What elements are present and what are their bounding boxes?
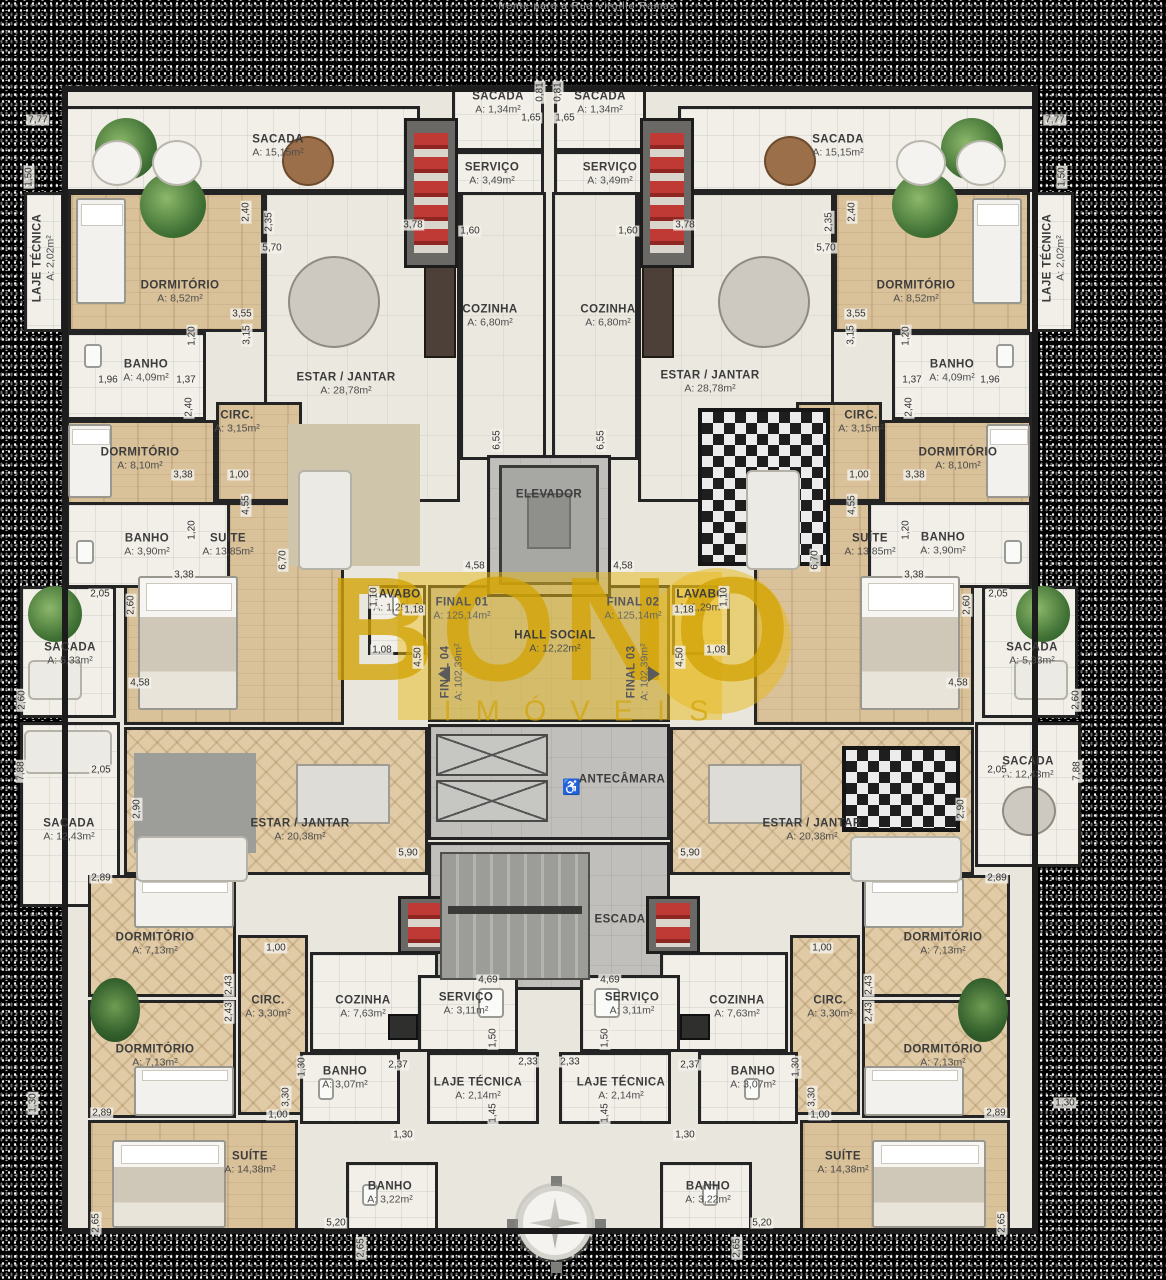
- dining-table: [296, 764, 390, 824]
- room-dormitorio-area: A: 8,10m²: [101, 460, 180, 472]
- room-dormitorio-label: DORMITÓRIOA: 7,13m²: [904, 931, 983, 956]
- dining-table: [708, 764, 802, 824]
- dimension-label: 2,60: [1071, 688, 1082, 711]
- crossed-slab: [436, 780, 548, 822]
- room-circ-area: A: 3,15m²: [214, 423, 260, 435]
- dimension-label: 3,30: [281, 1085, 292, 1108]
- room-sacada-label: SACADAA: 12,43m²: [1002, 755, 1054, 780]
- compass-icon: [518, 1186, 592, 1260]
- compass-tick-east: [595, 1219, 606, 1230]
- room-estar-jantar-area: A: 28,78m²: [296, 385, 395, 397]
- room-laje-tecnica-area: A: 2,02m²: [45, 214, 57, 303]
- dimension-label: 1,50: [1057, 165, 1068, 188]
- room-suite-label: SUÍTEA: 14,38m²: [224, 1150, 275, 1175]
- dimension-label: 1,60: [458, 226, 481, 237]
- room-estar-jantar-name: ESTAR / JANTAR: [296, 371, 395, 384]
- kitchen-island: [642, 262, 674, 358]
- dimension-label: 4,69: [598, 975, 621, 986]
- dimension-label: 4,50: [675, 645, 686, 668]
- dimension-label: 1,30: [791, 1055, 802, 1078]
- room-circ-name: CIRC.: [245, 994, 291, 1007]
- arrow-right-icon: [648, 666, 660, 682]
- room-cozinha-name: COZINHA: [580, 303, 635, 316]
- sofa: [850, 836, 962, 882]
- watermark-subbrand: IMÓVEIS: [444, 696, 733, 729]
- toilet: [76, 540, 94, 564]
- room-dormitorio-name: DORMITÓRIO: [116, 1043, 195, 1056]
- dimension-label: 2,05: [986, 589, 1009, 600]
- street-caption: frente para a Rua Virgílio Ramos: [498, 1, 675, 12]
- floor-plan: BONO IMÓVEIS ♿ SACADAA: 15,15m²SACADAA: …: [0, 0, 1166, 1280]
- room-banho-area: A: 3,90m²: [920, 545, 966, 557]
- room-circ-label: CIRC.A: 3,30m²: [245, 994, 291, 1019]
- room-laje-tecnica-label: LAJE TÉCNICAA: 2,14m²: [434, 1076, 523, 1101]
- dimension-label: 2,05: [88, 589, 111, 600]
- room-circ-name: CIRC.: [214, 409, 260, 422]
- room-banho-area: A: 3,22m²: [685, 1194, 731, 1206]
- room-dormitorio-area: A: 8,52m²: [877, 293, 956, 305]
- dimension-label: 5,70: [260, 243, 283, 254]
- dimension-label: 1,37: [900, 375, 923, 386]
- room-estar-jantar-label: ESTAR / JANTARA: 20,38m²: [762, 817, 861, 842]
- room-estar-jantar-name: ESTAR / JANTAR: [762, 817, 861, 830]
- room-sacada-area: A: 5,33m²: [1006, 655, 1058, 667]
- dimension-label: 1,30: [297, 1055, 308, 1078]
- room-escada-label: ESCADA: [595, 913, 646, 926]
- dimension-label: 1,50: [24, 165, 35, 188]
- dimension-label: 7,88: [16, 759, 27, 782]
- room-banho-label: BANHOA: 3,07m²: [322, 1065, 368, 1090]
- room-estar-jantar-area: A: 20,38m²: [250, 831, 349, 843]
- room-laje-tecnica-name: LAJE TÉCNICA: [577, 1076, 666, 1089]
- dimension-label: 3,38: [902, 570, 925, 581]
- room-dormitorio-area: A: 7,13m²: [904, 1057, 983, 1069]
- unit-tag-final-01-area: A: 125,14m²: [433, 610, 490, 622]
- dimension-label: 2,60: [17, 688, 28, 711]
- room-banho-area: A: 3,07m²: [322, 1079, 368, 1091]
- room-dormitorio-label: DORMITÓRIOA: 7,13m²: [116, 931, 195, 956]
- armchair: [152, 140, 202, 186]
- room-laje-tecnica-label: LAJE TÉCNICAA: 2,14m²: [577, 1076, 666, 1101]
- room-suite-name: SUÍTE: [224, 1150, 275, 1163]
- room-servico-area: A: 3,49m²: [465, 175, 519, 187]
- dimension-label: 1,30: [1053, 1098, 1076, 1109]
- room-banho-label: BANHOA: 4,09m²: [123, 358, 169, 383]
- dimension-label: 4,55: [241, 493, 252, 516]
- bed: [134, 1066, 234, 1116]
- floor-plan-canvas: frente para a Rua Virgílio Ramos BONO IM…: [0, 0, 1166, 1280]
- stairs: [440, 852, 590, 980]
- room-sacada-name: SACADA: [43, 817, 95, 830]
- dimension-label: 1,10: [719, 585, 730, 608]
- dimension-label: 1,50: [600, 1026, 611, 1049]
- dimension-label: 2,40: [847, 200, 858, 223]
- room-suite-area: A: 14,38m²: [817, 1164, 868, 1176]
- room-circ-label: CIRC.A: 3,15m²: [838, 409, 884, 434]
- dimension-label: 2,43: [864, 1000, 875, 1023]
- room-banho-label: BANHOA: 4,09m²: [929, 358, 975, 383]
- room-estar-jantar-name: ESTAR / JANTAR: [250, 817, 349, 830]
- bed: [864, 1066, 964, 1116]
- room-sacada-name: SACADA: [1006, 641, 1058, 654]
- barbecue: [646, 896, 700, 954]
- dimension-label: 2,90: [132, 797, 143, 820]
- room-sacada-area: A: 1,34m²: [574, 104, 626, 116]
- dimension-label: 5,90: [678, 848, 701, 859]
- room-sacada-area: A: 12,43m²: [1002, 769, 1054, 781]
- dimension-label: 6,55: [596, 428, 607, 451]
- room-suite-name: SUÍTE: [202, 532, 253, 545]
- dimension-label: 2,35: [264, 210, 275, 233]
- bed: [134, 878, 234, 928]
- dimension-label: 6,70: [810, 548, 821, 571]
- room-dormitorio-name: DORMITÓRIO: [904, 931, 983, 944]
- dimension-label: 2,35: [824, 210, 835, 233]
- dimension-label: 0,81: [553, 80, 564, 103]
- room-cozinha-label: COZINHAA: 7,63m²: [709, 994, 764, 1019]
- room-dormitorio-label: DORMITÓRIOA: 8,52m²: [141, 279, 220, 304]
- round-table: [1002, 786, 1056, 836]
- room-cozinha-name: COZINHA: [462, 303, 517, 316]
- room-circ-name: CIRC.: [807, 994, 853, 1007]
- dimension-label: 1,37: [174, 375, 197, 386]
- plant-icon: [958, 978, 1008, 1042]
- dimension-label: 1,00: [810, 943, 833, 954]
- room-cozinha-label: COZINHAA: 7,63m²: [335, 994, 390, 1019]
- dimension-label: 1,65: [553, 113, 576, 124]
- dimension-label: 1,30: [28, 1091, 39, 1114]
- dimension-label: 3,15: [846, 323, 857, 346]
- room-circ-label: CIRC.A: 3,30m²: [807, 994, 853, 1019]
- dimension-label: 1,45: [488, 1101, 499, 1124]
- dimension-label: 2,89: [89, 873, 112, 884]
- room-sacada-label: SACADAA: 12,43m²: [43, 817, 95, 842]
- room-servico-label: SERVIÇOA: 3,11m²: [439, 991, 493, 1016]
- room-circ-name: CIRC.: [838, 409, 884, 422]
- round-table: [764, 136, 816, 186]
- stove: [680, 1014, 710, 1040]
- room-dormitorio-name: DORMITÓRIO: [877, 279, 956, 292]
- dimension-label: 1,65: [519, 113, 542, 124]
- room-estar-jantar-label: ESTAR / JANTARA: 28,78m²: [660, 369, 759, 394]
- dimension-label: 5,20: [324, 1218, 347, 1229]
- dimension-label: 2,40: [184, 395, 195, 418]
- dimension-label: 2,65: [356, 1236, 367, 1259]
- room-banho-area: A: 4,09m²: [929, 372, 975, 384]
- dimension-label: 6,55: [492, 428, 503, 451]
- dimension-label: 1,45: [600, 1101, 611, 1124]
- unit-tag-final-02-name: FINAL 02: [604, 596, 661, 609]
- room-hall-social-name: HALL SOCIAL: [514, 629, 596, 642]
- toilet: [996, 344, 1014, 368]
- room-banho-label: BANHOA: 3,22m²: [367, 1180, 413, 1205]
- room-sacada-label: SACADAA: 5,33m²: [44, 641, 96, 666]
- dimension-label: 2,40: [241, 200, 252, 223]
- dimension-label: 1,00: [227, 470, 250, 481]
- dimension-label: 0,81: [535, 80, 546, 103]
- room-estar-jantar-area: A: 20,38m²: [762, 831, 861, 843]
- dimension-label: 4,50: [413, 645, 424, 668]
- crossed-slab: [436, 734, 548, 776]
- room-elevador-name: ELEVADOR: [516, 488, 582, 501]
- room-servico-area: A: 3,11m²: [605, 1005, 659, 1017]
- room-circ-area: A: 3,30m²: [245, 1008, 291, 1020]
- kitchen-island: [424, 262, 456, 358]
- room-servico-label: SERVIÇOA: 3,11m²: [605, 991, 659, 1016]
- room-circ: [238, 935, 308, 1115]
- barbecue: [404, 118, 458, 268]
- dimension-label: 1,10: [369, 585, 380, 608]
- bed: [76, 198, 126, 304]
- dimension-label: 1,00: [266, 1110, 289, 1121]
- unit-tag-final-02: FINAL 02A: 125,14m²: [604, 596, 661, 621]
- sofa: [136, 836, 248, 882]
- dimension-label: 2,43: [224, 1000, 235, 1023]
- room-sacada-label: SACADAA: 5,33m²: [1006, 641, 1058, 666]
- dimension-label: 2,60: [962, 593, 973, 616]
- room-laje-tecnica-name: LAJE TÉCNICA: [1041, 214, 1054, 303]
- room-servico-area: A: 3,49m²: [583, 175, 637, 187]
- room-suite-label: SUÍTEA: 13,85m²: [202, 532, 253, 557]
- room-sacada-name: SACADA: [472, 90, 524, 103]
- plant-icon: [90, 978, 140, 1042]
- plant-icon: [1016, 586, 1070, 642]
- room-cozinha-label: COZINHAA: 6,80m²: [462, 303, 517, 328]
- dimension-label: 1,30: [673, 1130, 696, 1141]
- room-dormitorio-name: DORMITÓRIO: [141, 279, 220, 292]
- dimension-label: 2,65: [732, 1236, 743, 1259]
- dimension-label: 2,60: [126, 593, 137, 616]
- room-sacada-label: SACADAA: 1,34m²: [574, 90, 626, 115]
- dimension-label: 2,90: [956, 797, 967, 820]
- room-banho-area: A: 3,90m²: [124, 546, 170, 558]
- armchair: [92, 140, 142, 186]
- room-banho-label: BANHOA: 3,22m²: [685, 1180, 731, 1205]
- room-sacada-label: SACADAA: 15,15m²: [812, 133, 864, 158]
- room-cozinha-area: A: 7,63m²: [335, 1008, 390, 1020]
- room-banho-name: BANHO: [685, 1180, 731, 1193]
- room-dormitorio-area: A: 7,13m²: [904, 945, 983, 957]
- room-dormitorio-name: DORMITÓRIO: [919, 446, 998, 459]
- dining-table: [718, 256, 810, 348]
- room-servico-area: A: 3,11m²: [439, 1005, 493, 1017]
- room-cozinha-name: COZINHA: [335, 994, 390, 1007]
- dimension-label: 3,38: [903, 470, 926, 481]
- room-laje-tecnica-area: A: 2,14m²: [577, 1090, 666, 1102]
- room-servico-name: SERVIÇO: [605, 991, 659, 1004]
- dimension-label: 2,43: [864, 973, 875, 996]
- room-servico-name: SERVIÇO: [439, 991, 493, 1004]
- dimension-label: 7,77: [1043, 115, 1066, 126]
- dimension-label: 7,77: [26, 115, 49, 126]
- toilet: [84, 344, 102, 368]
- room-hall-social-label: HALL SOCIALA: 12,22m²: [514, 629, 596, 654]
- room-dormitorio-name: DORMITÓRIO: [101, 446, 180, 459]
- dimension-label: 2,37: [386, 1060, 409, 1071]
- dimension-label: 1,08: [370, 645, 393, 656]
- room-dormitorio-label: DORMITÓRIOA: 7,13m²: [116, 1043, 195, 1068]
- dimension-label: 4,58: [128, 678, 151, 689]
- room-banho-name: BANHO: [929, 358, 975, 371]
- barbecue: [640, 118, 694, 268]
- room-banho-area: A: 3,07m²: [730, 1079, 776, 1091]
- dimension-label: 2,65: [997, 1211, 1008, 1234]
- dimension-label: 4,69: [476, 975, 499, 986]
- room-suite-area: A: 13,85m²: [202, 546, 253, 558]
- dimension-label: 2,43: [224, 973, 235, 996]
- dimension-label: 5,70: [814, 243, 837, 254]
- dimension-label: 1,20: [187, 518, 198, 541]
- room-sacada-area: A: 15,15m²: [812, 147, 864, 159]
- armchair: [896, 140, 946, 186]
- unit-tag-final-01: FINAL 01A: 125,14m²: [433, 596, 490, 621]
- dimension-label: 2,89: [984, 1108, 1007, 1119]
- room-laje-tecnica-name: LAJE TÉCNICA: [31, 214, 44, 303]
- room-estar-jantar-name: ESTAR / JANTAR: [660, 369, 759, 382]
- dimension-label: 3,30: [807, 1085, 818, 1108]
- dimension-label: 1,00: [847, 470, 870, 481]
- dimension-label: 3,78: [401, 220, 424, 231]
- room-cozinha-name: COZINHA: [709, 994, 764, 1007]
- dimension-label: 1,00: [264, 943, 287, 954]
- room-circ-label: CIRC.A: 3,15m²: [214, 409, 260, 434]
- dimension-label: 1,20: [901, 518, 912, 541]
- room-cozinha-area: A: 6,80m²: [462, 317, 517, 329]
- dimension-label: 1,08: [704, 645, 727, 656]
- room-sacada-area: A: 1,34m²: [472, 104, 524, 116]
- room-dormitorio-area: A: 8,52m²: [141, 293, 220, 305]
- room-estar-jantar-area: A: 28,78m²: [660, 383, 759, 395]
- room-banho-label: BANHOA: 3,90m²: [124, 532, 170, 557]
- dimension-label: 2,05: [985, 765, 1008, 776]
- room-dormitorio-name: DORMITÓRIO: [116, 931, 195, 944]
- dimension-label: 1,20: [187, 324, 198, 347]
- dimension-label: 4,58: [946, 678, 969, 689]
- room-laje-tecnica-area: A: 2,02m²: [1055, 214, 1067, 303]
- room-dormitorio-area: A: 8,10m²: [919, 460, 998, 472]
- room-dormitorio-label: DORMITÓRIOA: 7,13m²: [904, 1043, 983, 1068]
- plant-icon: [28, 586, 82, 642]
- room-servico-label: SERVIÇOA: 3,49m²: [465, 161, 519, 186]
- unit-tag-final-01-name: FINAL 01: [433, 596, 490, 609]
- room-banho-name: BANHO: [123, 358, 169, 371]
- room-sacada-name: SACADA: [44, 641, 96, 654]
- compass-tick-west: [507, 1219, 518, 1230]
- dimension-label: 3,15: [242, 323, 253, 346]
- dimension-label: 1,96: [96, 375, 119, 386]
- bed: [972, 198, 1022, 304]
- dimension-label: 5,20: [750, 1218, 773, 1229]
- room-suite-name: SUÍTE: [844, 532, 895, 545]
- armchair: [956, 140, 1006, 186]
- bed: [112, 1140, 226, 1228]
- room-sacada-name: SACADA: [252, 133, 304, 146]
- dimension-label: 1,20: [901, 324, 912, 347]
- dimension-label: 3,78: [673, 220, 696, 231]
- room-servico-name: SERVIÇO: [583, 161, 637, 174]
- toilet: [1004, 540, 1022, 564]
- room-circ-area: A: 3,30m²: [807, 1008, 853, 1020]
- dimension-label: 3,55: [844, 309, 867, 320]
- room-banho-name: BANHO: [920, 531, 966, 544]
- dimension-label: 4,55: [847, 493, 858, 516]
- room-cozinha-area: A: 7,63m²: [709, 1008, 764, 1020]
- dimension-label: 2,40: [904, 395, 915, 418]
- room-sacada-area: A: 15,15m²: [252, 147, 304, 159]
- room-banho-name: BANHO: [124, 532, 170, 545]
- room-estar-jantar-label: ESTAR / JANTARA: 28,78m²: [296, 371, 395, 396]
- room-circ-area: A: 3,15m²: [838, 423, 884, 435]
- dimension-label: 1,30: [391, 1130, 414, 1141]
- dimension-label: 4,58: [611, 561, 634, 572]
- room-suite-name: SUÍTE: [817, 1150, 868, 1163]
- room-banho-area: A: 3,22m²: [367, 1194, 413, 1206]
- dimension-label: 1,18: [402, 605, 425, 616]
- dimension-label: 5,90: [396, 848, 419, 859]
- dimension-label: 3,38: [172, 570, 195, 581]
- room-escada-name: ESCADA: [595, 913, 646, 926]
- room-banho-label: BANHOA: 3,07m²: [730, 1065, 776, 1090]
- room-banho-label: BANHOA: 3,90m²: [920, 531, 966, 556]
- room-elevador-label: ELEVADOR: [516, 488, 582, 501]
- room-suite-area: A: 13,85m²: [844, 546, 895, 558]
- unit-tag-final-04-area: A: 102,39m²: [453, 643, 465, 700]
- unit-tag-final-02-area: A: 125,14m²: [604, 610, 661, 622]
- bed: [864, 878, 964, 928]
- room-sacada-name: SACADA: [574, 90, 626, 103]
- dining-table: [288, 256, 380, 348]
- dimension-label: 2,89: [90, 1108, 113, 1119]
- room-sacada-label: SACADAA: 1,34m²: [472, 90, 524, 115]
- room-dormitorio-label: DORMITÓRIOA: 8,10m²: [101, 446, 180, 471]
- room-sacada-name: SACADA: [1002, 755, 1054, 768]
- room-dormitorio-area: A: 7,13m²: [116, 945, 195, 957]
- unit-tag-final-03-name: FINAL 03: [625, 643, 638, 700]
- dimension-label: 2,89: [985, 873, 1008, 884]
- room-sacada-name: SACADA: [812, 133, 864, 146]
- bed: [872, 1140, 986, 1228]
- room-dormitorio-area: A: 7,13m²: [116, 1057, 195, 1069]
- compass-star-icon: [529, 1197, 581, 1249]
- room-cozinha-area: A: 6,80m²: [580, 317, 635, 329]
- dimension-label: 2,05: [89, 765, 112, 776]
- room-dormitorio-name: DORMITÓRIO: [904, 1043, 983, 1056]
- dimension-label: 2,65: [91, 1211, 102, 1234]
- room-banho-area: A: 4,09m²: [123, 372, 169, 384]
- room-banho-name: BANHO: [730, 1065, 776, 1078]
- room-cozinha-label: COZINHAA: 6,80m²: [580, 303, 635, 328]
- dimension-label: 6,70: [278, 548, 289, 571]
- room-servico-name: SERVIÇO: [465, 161, 519, 174]
- dimension-label: 1,00: [808, 1110, 831, 1121]
- bed: [138, 576, 238, 710]
- dimension-label: 1,50: [488, 1026, 499, 1049]
- dimension-label: 1,18: [672, 605, 695, 616]
- bed: [860, 576, 960, 710]
- dimension-label: 3,55: [230, 309, 253, 320]
- room-banho-name: BANHO: [322, 1065, 368, 1078]
- unit-tag-final-03: FINAL 03A: 102,39m²: [625, 643, 650, 700]
- room-sacada-label: SACADAA: 15,15m²: [252, 133, 304, 158]
- room-laje-tecnica-area: A: 2,14m²: [434, 1090, 523, 1102]
- arrow-left-icon: [438, 666, 450, 682]
- compass-tick-south: [551, 1262, 562, 1273]
- dimension-label: 2,33: [516, 1057, 539, 1068]
- dimension-label: 2,37: [678, 1060, 701, 1071]
- room-antecamara-label: ANTECÂMARA: [579, 773, 665, 786]
- room-servico-label: SERVIÇOA: 3,49m²: [583, 161, 637, 186]
- dimension-label: 2,33: [558, 1057, 581, 1068]
